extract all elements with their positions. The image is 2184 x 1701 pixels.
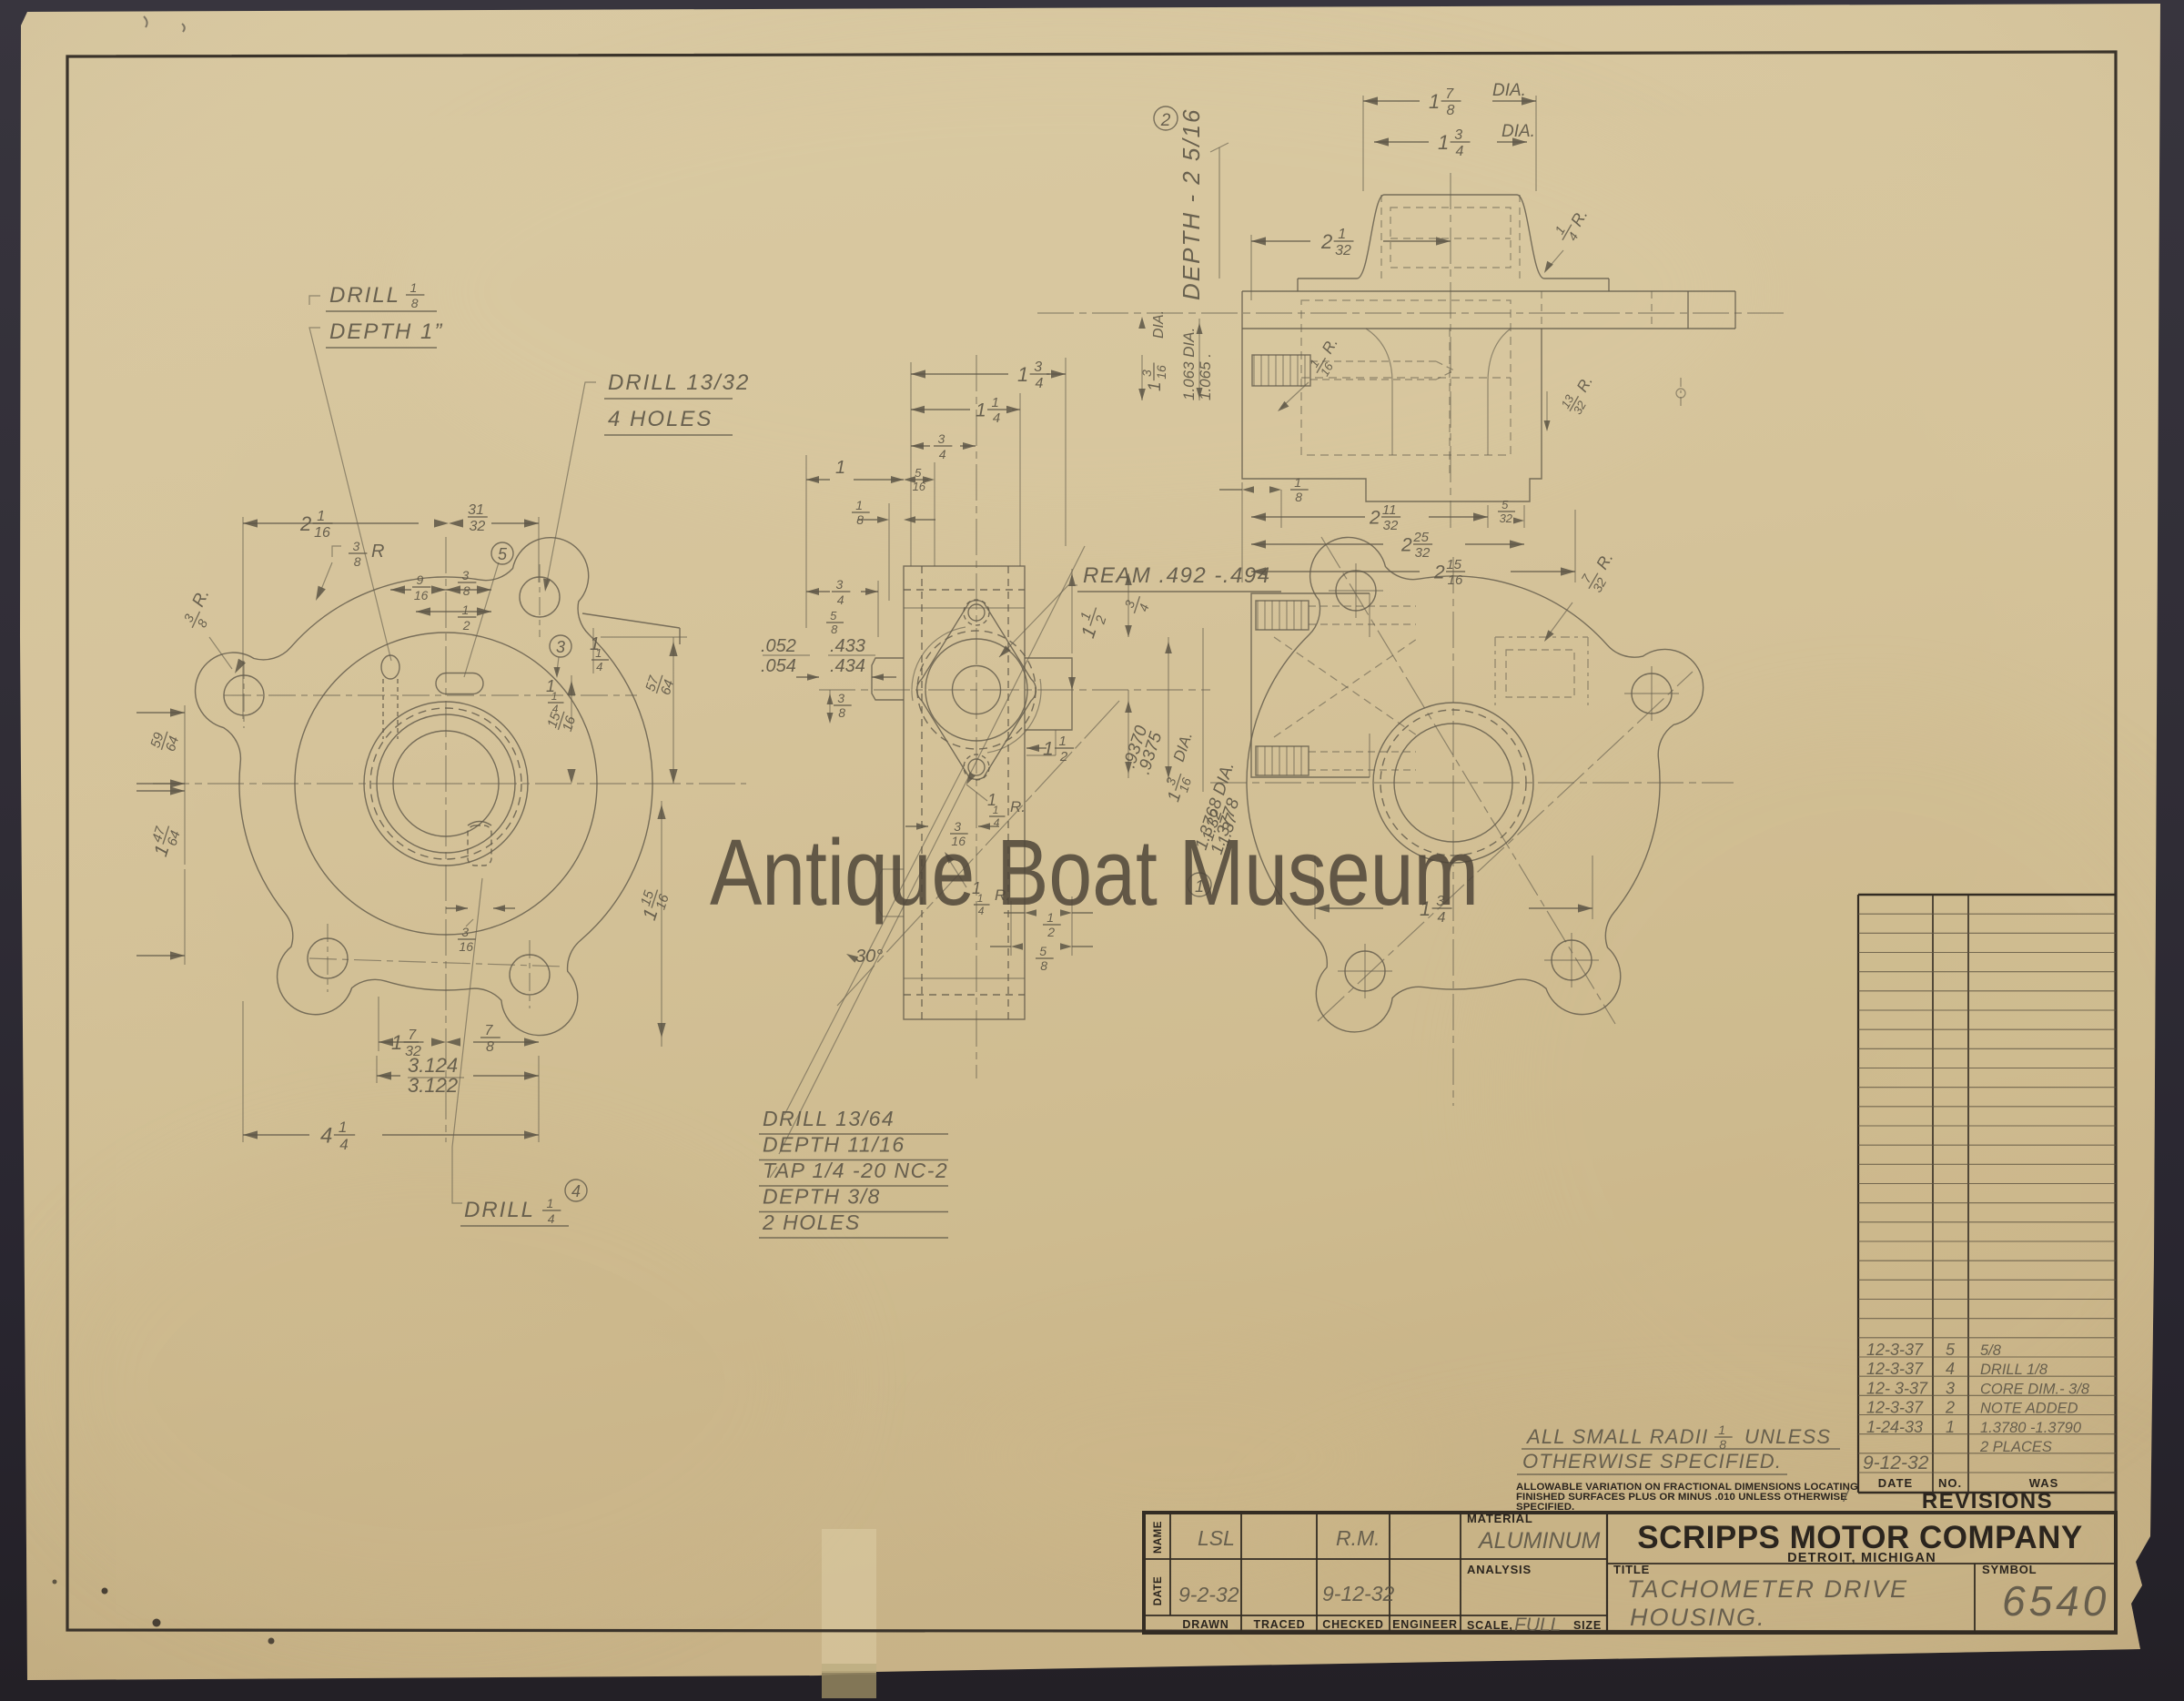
svg-text:4: 4 bbox=[1946, 1360, 1955, 1378]
svg-text:DRILL 1/8: DRILL 1/8 bbox=[1980, 1362, 2048, 1378]
svg-text:1: 1 bbox=[1017, 363, 1028, 386]
svg-text:1: 1 bbox=[1059, 734, 1067, 749]
svg-text:DRILL: DRILL bbox=[464, 1198, 535, 1222]
svg-text:Antique Boat Museum: Antique Boat Museum bbox=[710, 820, 1479, 925]
svg-text:1: 1 bbox=[551, 690, 558, 703]
svg-text:.434: .434 bbox=[830, 656, 865, 676]
svg-text:5: 5 bbox=[498, 545, 508, 563]
svg-text:32: 32 bbox=[1415, 545, 1431, 561]
svg-text:8: 8 bbox=[856, 512, 864, 527]
svg-text:1: 1 bbox=[1946, 1418, 1955, 1436]
svg-text:32: 32 bbox=[1383, 518, 1399, 533]
svg-text:1: 1 bbox=[410, 280, 418, 295]
svg-text:DEPTH - 2 5/16: DEPTH - 2 5/16 bbox=[1178, 107, 1205, 300]
svg-text:5: 5 bbox=[915, 466, 922, 480]
svg-text:TACHOMETER DRIVE: TACHOMETER DRIVE bbox=[1627, 1575, 1908, 1603]
svg-text:CORE DIM.- 3/8: CORE DIM.- 3/8 bbox=[1980, 1381, 2090, 1397]
svg-text:8: 8 bbox=[463, 583, 470, 598]
svg-text:8: 8 bbox=[486, 1039, 494, 1055]
svg-text:DETROIT, MICHIGAN: DETROIT, MICHIGAN bbox=[1787, 1551, 1936, 1565]
svg-text:3: 3 bbox=[1139, 370, 1154, 377]
svg-text:1: 1 bbox=[317, 509, 325, 524]
svg-text:MATERIAL: MATERIAL bbox=[1467, 1512, 1533, 1525]
svg-text:REVISIONS: REVISIONS bbox=[1922, 1489, 2053, 1514]
svg-text:1: 1 bbox=[993, 804, 999, 816]
svg-text:TITLE: TITLE bbox=[1613, 1563, 1650, 1576]
svg-text:2: 2 bbox=[1059, 749, 1068, 764]
svg-text:12-3-37: 12-3-37 bbox=[1866, 1360, 1924, 1378]
svg-text:DRILL 13/32: DRILL 13/32 bbox=[608, 370, 750, 395]
svg-text:8: 8 bbox=[838, 705, 845, 720]
svg-text:15: 15 bbox=[1446, 557, 1461, 572]
svg-text:16: 16 bbox=[414, 588, 429, 602]
svg-text:1: 1 bbox=[1146, 381, 1165, 391]
svg-text:DRAWN: DRAWN bbox=[1182, 1618, 1228, 1631]
svg-text:16: 16 bbox=[913, 480, 926, 493]
svg-text:3: 3 bbox=[461, 925, 469, 939]
svg-text:32: 32 bbox=[1500, 511, 1513, 525]
svg-text:1: 1 bbox=[855, 498, 863, 512]
svg-text:1: 1 bbox=[1294, 475, 1301, 490]
svg-text:1.3780 -1.3790: 1.3780 -1.3790 bbox=[1980, 1420, 2082, 1436]
svg-text:1: 1 bbox=[391, 1031, 402, 1054]
svg-text:OTHERWISE SPECIFIED.: OTHERWISE SPECIFIED. bbox=[1522, 1450, 1782, 1473]
svg-text:NAME: NAME bbox=[1153, 1521, 1164, 1554]
svg-text:DRILL 13/64: DRILL 13/64 bbox=[763, 1107, 895, 1130]
svg-text:4: 4 bbox=[939, 447, 946, 461]
svg-text:8: 8 bbox=[1295, 490, 1302, 504]
svg-text:4: 4 bbox=[1456, 144, 1464, 159]
svg-text:R: R bbox=[371, 542, 384, 562]
svg-text:DEPTH 3/8: DEPTH 3/8 bbox=[763, 1185, 881, 1209]
svg-text:4: 4 bbox=[339, 1136, 348, 1153]
svg-text:.054: .054 bbox=[761, 656, 796, 676]
svg-text:1: 1 bbox=[976, 400, 986, 421]
svg-text:2: 2 bbox=[462, 618, 470, 633]
svg-text:8: 8 bbox=[1447, 103, 1455, 118]
svg-text:NOTE ADDED: NOTE ADDED bbox=[1980, 1401, 2078, 1417]
svg-text:12- 3-37: 12- 3-37 bbox=[1866, 1379, 1928, 1397]
svg-text:25: 25 bbox=[1412, 530, 1429, 545]
svg-text:1: 1 bbox=[835, 458, 845, 478]
svg-text:12-3-37: 12-3-37 bbox=[1866, 1341, 1924, 1359]
svg-text:8: 8 bbox=[831, 623, 838, 636]
svg-text:2: 2 bbox=[1046, 925, 1055, 939]
svg-text:2 PLACES: 2 PLACES bbox=[1979, 1439, 2052, 1455]
svg-text:TRACED: TRACED bbox=[1254, 1618, 1306, 1631]
svg-text:3: 3 bbox=[556, 638, 565, 656]
svg-text:9-12-32: 9-12-32 bbox=[1863, 1453, 1929, 1473]
svg-text:8: 8 bbox=[411, 296, 419, 310]
svg-text:HOUSING.: HOUSING. bbox=[1630, 1604, 1766, 1631]
svg-text:SCALE,: SCALE, bbox=[1467, 1619, 1513, 1632]
svg-text:4: 4 bbox=[596, 660, 602, 673]
svg-text:7: 7 bbox=[1445, 86, 1454, 102]
svg-text:3: 3 bbox=[462, 568, 470, 582]
svg-text:6540: 6540 bbox=[2002, 1577, 2109, 1625]
svg-text:CHECKED: CHECKED bbox=[1322, 1618, 1383, 1631]
svg-text:UNLESS: UNLESS bbox=[1744, 1425, 1831, 1448]
svg-text:SYMBOL: SYMBOL bbox=[1982, 1563, 2037, 1576]
svg-text:R.: R. bbox=[1010, 798, 1026, 815]
svg-text:2: 2 bbox=[299, 512, 311, 535]
svg-text:ENGINEER: ENGINEER bbox=[1392, 1618, 1458, 1631]
svg-text:9-12-32: 9-12-32 bbox=[1322, 1582, 1394, 1605]
svg-text:DEPTH 1”: DEPTH 1” bbox=[329, 319, 443, 344]
svg-text:11: 11 bbox=[1382, 502, 1397, 518]
svg-text:NO.: NO. bbox=[1938, 1476, 1962, 1490]
svg-text:3: 3 bbox=[837, 691, 844, 705]
svg-text:1.063 DIA.: 1.063 DIA. bbox=[1180, 328, 1198, 400]
svg-text:DIA.: DIA. bbox=[1492, 81, 1526, 100]
svg-text:1: 1 bbox=[992, 395, 999, 410]
svg-text:ALL SMALL RADII: ALL SMALL RADII bbox=[1525, 1425, 1708, 1448]
svg-text:9-2-32: 9-2-32 bbox=[1178, 1583, 1239, 1606]
svg-text:4: 4 bbox=[1036, 376, 1044, 391]
svg-text:1: 1 bbox=[462, 602, 470, 617]
svg-text:16: 16 bbox=[1154, 365, 1168, 380]
svg-text:32: 32 bbox=[1335, 243, 1351, 258]
svg-text:DATE: DATE bbox=[1878, 1476, 1913, 1490]
svg-text:DIA.: DIA. bbox=[1151, 310, 1167, 339]
svg-text:1: 1 bbox=[595, 646, 602, 660]
svg-text:REAM .492 -.494: REAM .492 -.494 bbox=[1083, 563, 1271, 588]
svg-text:7: 7 bbox=[485, 1023, 494, 1038]
svg-text:WAS: WAS bbox=[2029, 1476, 2059, 1490]
svg-text:16: 16 bbox=[314, 525, 330, 541]
svg-text:4: 4 bbox=[571, 1182, 581, 1200]
svg-text:1: 1 bbox=[1043, 739, 1054, 760]
svg-text:16: 16 bbox=[459, 939, 473, 954]
svg-text:1: 1 bbox=[339, 1119, 347, 1136]
svg-text:2: 2 bbox=[1320, 230, 1332, 253]
svg-text:FULL: FULL bbox=[1514, 1615, 1561, 1635]
svg-text:5/8: 5/8 bbox=[1980, 1342, 2002, 1359]
svg-text:32: 32 bbox=[470, 519, 486, 534]
svg-text:SPECIFIED.: SPECIFIED. bbox=[1516, 1502, 1574, 1513]
svg-text:3: 3 bbox=[1946, 1379, 1955, 1397]
svg-text:3: 3 bbox=[1034, 359, 1042, 375]
svg-text:5: 5 bbox=[1039, 944, 1046, 958]
svg-text:1: 1 bbox=[547, 1196, 554, 1210]
svg-text:4: 4 bbox=[320, 1124, 332, 1149]
svg-text:31: 31 bbox=[468, 502, 484, 518]
svg-text:.433: .433 bbox=[830, 636, 865, 656]
svg-text:7: 7 bbox=[408, 1028, 417, 1043]
svg-text:LSL: LSL bbox=[1198, 1526, 1235, 1550]
svg-text:3: 3 bbox=[836, 577, 844, 592]
svg-text:4: 4 bbox=[837, 592, 844, 607]
svg-text:16: 16 bbox=[1448, 572, 1463, 588]
svg-text:2: 2 bbox=[1433, 562, 1445, 583]
svg-text:3: 3 bbox=[1454, 127, 1462, 143]
svg-text:4: 4 bbox=[548, 1211, 555, 1226]
svg-text:DRILL: DRILL bbox=[329, 283, 400, 308]
svg-text:5: 5 bbox=[830, 609, 837, 623]
svg-text:3: 3 bbox=[353, 539, 360, 553]
svg-text:TAP 1/4 -20 NC-2: TAP 1/4 -20 NC-2 bbox=[763, 1159, 948, 1182]
svg-text:R.M.: R.M. bbox=[1336, 1526, 1380, 1550]
svg-text:3: 3 bbox=[938, 431, 945, 446]
svg-text:ANALYSIS: ANALYSIS bbox=[1467, 1563, 1532, 1576]
svg-text:9: 9 bbox=[417, 572, 424, 587]
svg-text:5: 5 bbox=[1501, 498, 1509, 511]
svg-text:DATE: DATE bbox=[1153, 1576, 1164, 1605]
svg-text:1: 1 bbox=[1718, 1423, 1725, 1437]
svg-text:.052: .052 bbox=[761, 636, 796, 656]
svg-text:8: 8 bbox=[354, 554, 361, 569]
svg-text:4 HOLES: 4 HOLES bbox=[608, 407, 713, 431]
svg-text:4: 4 bbox=[993, 410, 1000, 426]
svg-text:5: 5 bbox=[1946, 1341, 1956, 1359]
svg-text:2: 2 bbox=[1160, 111, 1171, 130]
svg-text:2: 2 bbox=[1400, 535, 1412, 556]
svg-text:4: 4 bbox=[552, 703, 559, 715]
svg-text:DIA.: DIA. bbox=[1501, 122, 1535, 141]
svg-text:30°: 30° bbox=[855, 947, 883, 967]
svg-text:2: 2 bbox=[1369, 508, 1380, 529]
svg-text:1: 1 bbox=[1338, 227, 1346, 242]
svg-text:1: 1 bbox=[1438, 131, 1449, 154]
svg-text:1-24-33: 1-24-33 bbox=[1866, 1418, 1923, 1436]
svg-text:2: 2 bbox=[1945, 1399, 1955, 1417]
svg-text:12-3-37: 12-3-37 bbox=[1866, 1399, 1924, 1417]
svg-text:8: 8 bbox=[1040, 958, 1047, 973]
svg-text:1: 1 bbox=[1429, 90, 1440, 113]
svg-text:ALUMINUM: ALUMINUM bbox=[1477, 1528, 1601, 1554]
svg-text:SIZE: SIZE bbox=[1573, 1619, 1602, 1632]
svg-text:2 HOLES: 2 HOLES bbox=[762, 1210, 861, 1234]
